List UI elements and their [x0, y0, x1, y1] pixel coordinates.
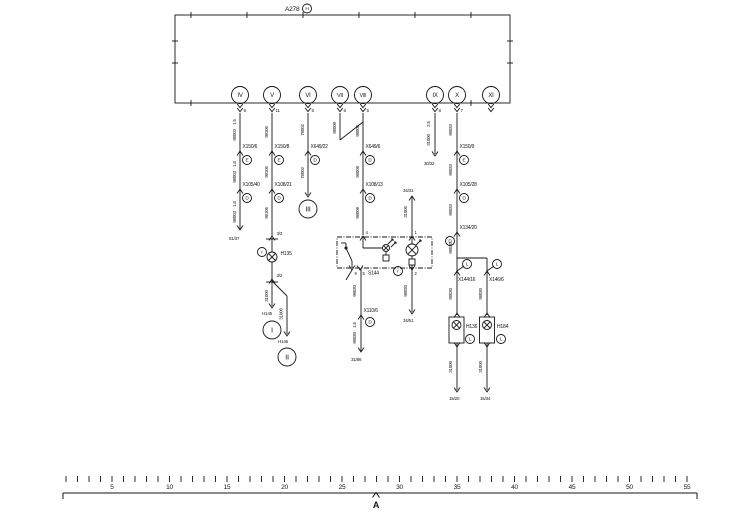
plug-pin-icon	[305, 108, 311, 112]
connector-label: X649/6	[366, 144, 381, 150]
pin-number: 7	[461, 108, 464, 113]
badge-text: D	[462, 196, 466, 202]
badge-text: r	[261, 250, 263, 256]
wire-number: 98106	[264, 126, 269, 138]
wire-number: 98030	[478, 288, 483, 300]
plug-pin-icon	[237, 108, 243, 112]
pin-number: 4	[366, 230, 369, 235]
ruler-number: 10	[166, 484, 173, 491]
connector-iv-text: IV	[237, 93, 242, 99]
plug-pin-icon	[454, 104, 460, 108]
wire-line	[272, 281, 287, 296]
plug-pin-icon	[337, 104, 343, 108]
connector-v-text: V	[270, 93, 274, 99]
badge-text: D	[277, 196, 281, 202]
plug-pin-icon	[305, 104, 311, 108]
pin-number: 2	[415, 271, 418, 276]
pin-number: 1	[415, 230, 418, 235]
connector-label: X134/20	[460, 225, 478, 231]
ruler-number: 35	[454, 484, 461, 491]
wire-number: 98008	[355, 166, 360, 178]
ruler-number: 5	[110, 484, 114, 491]
badge-text: L	[466, 262, 469, 268]
component-label: H184	[497, 324, 509, 330]
badge-text: D	[313, 158, 317, 164]
module-label: A278	[285, 6, 300, 13]
ruler-number: 15	[224, 484, 231, 491]
ruler-number: 55	[684, 484, 691, 491]
connector-label: X146/6	[489, 277, 504, 283]
pin-number: 6	[344, 108, 347, 113]
plug-pin-icon	[432, 108, 438, 112]
wire-number: 98008	[332, 122, 337, 134]
wire-number: 1.5	[232, 200, 237, 206]
wire-number: 31000	[426, 134, 431, 146]
wire-line	[388, 239, 393, 244]
connector-label: X108/13	[366, 182, 384, 188]
plug-pin-icon	[360, 108, 366, 112]
connector-label: X144/16	[458, 277, 476, 283]
pin-number: 11	[276, 108, 281, 113]
ruler-number: 45	[569, 484, 576, 491]
schematic-canvas: IVVVIVIIVIIIIXXXIIIIIIIHEDEDDDDDEDDLLLLr…	[0, 0, 744, 518]
ruler-number: 25	[339, 484, 346, 491]
plug-pin-icon	[488, 108, 494, 112]
destination-label: 34/51	[403, 318, 414, 323]
plug-pin-icon	[360, 104, 366, 108]
wire-number: 98008	[355, 207, 360, 219]
wire-number: 98030	[403, 285, 408, 297]
pin-number: 5	[367, 108, 370, 113]
plug-pin-icon	[269, 108, 275, 112]
module-a278-box	[175, 15, 510, 103]
component-label: H135	[281, 251, 293, 257]
wire-number: 31000	[448, 361, 453, 373]
destination-label: 31/86	[351, 357, 362, 362]
plug-pin-icon	[269, 104, 275, 108]
wire-number: 98003	[232, 129, 237, 141]
wire-line	[391, 242, 396, 247]
connector-label: X108/21	[275, 182, 293, 188]
connector-label: X150/6	[243, 144, 258, 150]
wire-number: 98030	[448, 288, 453, 300]
plug-pin-icon	[432, 104, 438, 108]
badge-text: E	[463, 158, 466, 164]
connector-label: X110/6	[364, 308, 379, 314]
connector-label: X105/40	[243, 182, 261, 188]
wiring-diagram-page: IVVVIVIIVIIIIXXXIIIIIIIHEDEDDDDDEDDLLLLr…	[0, 0, 744, 518]
connector-xi-text: XI	[488, 93, 494, 99]
component-label: S144	[368, 271, 379, 277]
destination-label: 15/20	[449, 396, 460, 401]
badge-text: L	[496, 262, 499, 268]
pin-number: 5	[312, 108, 315, 113]
badge-text: L	[469, 337, 472, 343]
connector-vi-text: VI	[305, 93, 311, 99]
badge-text: D	[368, 320, 372, 326]
connector-label: X150/9	[460, 144, 475, 150]
ruler-number: 30	[396, 484, 403, 491]
wire-number: 98033	[448, 124, 453, 136]
connector-vii-text: VII	[337, 93, 344, 99]
destination-label: H146	[278, 339, 289, 344]
wire-number: 98030	[352, 285, 357, 297]
wire-number: 1.5	[352, 321, 357, 327]
wire-number: 98033	[448, 204, 453, 216]
wire-number: 98003	[232, 211, 237, 223]
connector-x-text: X	[455, 93, 459, 99]
wire-number: 98030	[352, 332, 357, 344]
plug-pin-icon	[337, 108, 343, 112]
wire-number: 98003	[232, 171, 237, 183]
badge-text: r	[397, 269, 399, 275]
destination-label: H145	[262, 311, 273, 316]
badge-text: L	[500, 337, 503, 343]
wire-number: 31000	[478, 361, 483, 373]
destination-label: 30/32	[424, 161, 435, 166]
wire-number: 98105	[264, 207, 269, 219]
pin-number: 9	[355, 271, 358, 276]
component-label: H136	[466, 324, 478, 330]
pin-number: 8	[439, 108, 442, 113]
ruler-number: 20	[281, 484, 288, 491]
wire-number: 98008	[355, 125, 360, 137]
connector-label: X105/28	[460, 182, 478, 188]
ruler-number: 40	[511, 484, 518, 491]
wire-number: 31005	[403, 206, 408, 218]
s144-resistor-left	[383, 255, 389, 261]
wire-number: 1.5	[232, 118, 237, 124]
section-i-text: I	[271, 326, 273, 335]
badge-text: D	[368, 196, 372, 202]
badge-text: D	[245, 196, 249, 202]
badge-text: D	[368, 158, 372, 164]
connector-label: X649/22	[311, 144, 329, 150]
destination-label: 51/37	[229, 236, 240, 241]
destination-label: 34/31	[403, 188, 414, 193]
connector-label: X150/8	[275, 144, 290, 150]
section-ii-text: II	[285, 353, 289, 362]
section-iii-text: III	[305, 207, 310, 214]
wire-number: 2.5	[426, 120, 431, 126]
connector-viii-text: VIII	[360, 93, 367, 99]
badge-text: E	[246, 158, 249, 164]
destination-label: 15/34	[480, 396, 491, 401]
wire-line	[346, 248, 352, 261]
plug-pin-icon	[237, 104, 243, 108]
ruler-pointer-label: A	[373, 500, 380, 510]
splice-label: 3/3	[277, 231, 283, 236]
wire-line	[346, 270, 352, 280]
switch-pivot	[345, 247, 347, 249]
ruler-number: 50	[626, 484, 633, 491]
splice-label: 3/2	[277, 273, 283, 278]
pin-number: 5	[363, 271, 366, 276]
wire-number: 31000	[264, 290, 269, 302]
wire-number: 98105	[264, 166, 269, 178]
badge-title-text: H	[305, 6, 309, 12]
s144-resistor-right	[409, 259, 415, 265]
wire-number: 31000	[279, 308, 284, 320]
wire-number: 1.5	[232, 160, 237, 166]
connector-ix-text: IX	[432, 93, 437, 99]
wire-line	[416, 240, 421, 245]
wire-number: 78002	[300, 124, 305, 136]
wire-number: 78002	[300, 167, 305, 179]
wire-number: 98030	[448, 242, 453, 254]
plug-pin-icon	[454, 108, 460, 112]
wire-number: 98033	[448, 164, 453, 176]
badge-text: E	[278, 158, 281, 164]
plug-pin-icon	[488, 104, 494, 108]
pin-number: 8	[244, 108, 247, 113]
